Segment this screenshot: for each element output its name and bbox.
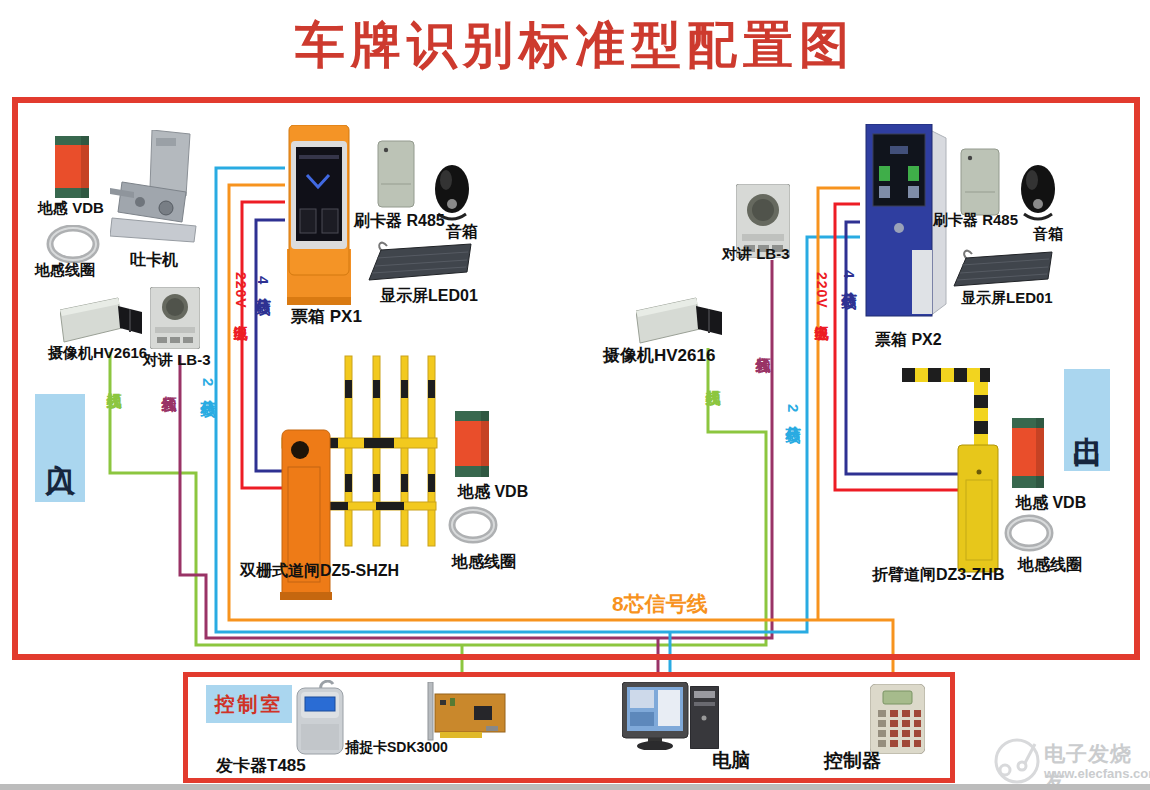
camera-image [60, 296, 144, 344]
bottom-strip [0, 784, 1150, 790]
intercom-image [150, 287, 200, 349]
exit-zone-badge: 出口 [1064, 369, 1110, 471]
power-wire-label: 220V 电源线 [232, 272, 250, 317]
ticket-box-2-label: 票箱 PX2 [875, 330, 942, 351]
camera-label: 摄像机HV2616 [48, 344, 147, 363]
control-room-badge: 控制室 [206, 685, 292, 723]
power-wire-label: 220V 电源线 [813, 272, 831, 317]
vdb-label: 地感 VDB [458, 482, 528, 503]
card-issuer-image [293, 680, 347, 758]
page-title: 车牌识别标准型配置图 [0, 12, 1150, 79]
camera-image [636, 295, 724, 345]
entrance-zone-badge: 入口 [35, 394, 85, 502]
exit-barrier-image [890, 360, 1010, 575]
controller-label: 控制器 [824, 748, 881, 774]
signal4-wire-label: 4芯信号线 [253, 276, 272, 289]
entrance-barrier-label: 双栅式道闸DZ5-SHZH [240, 561, 399, 582]
vdb-sensor-image [53, 136, 93, 198]
card-dispenser-label: 吐卡机 [130, 250, 178, 271]
vdb-label: 地感 VDB [1016, 493, 1086, 514]
signal8-wire-label: 8芯信号线 [612, 590, 708, 618]
camera-label: 摄像机HV2616 [603, 344, 715, 367]
computer-label: 电脑 [712, 748, 750, 774]
capture-card-image [426, 682, 508, 746]
vdb-label: 地感 VDB [38, 199, 104, 218]
audio-wire-label: 音频线 [753, 344, 772, 347]
capture-card-label: 捕捉卡SDK3000 [345, 739, 448, 757]
card-reader-image [377, 140, 415, 208]
led-display-label: 显示屏LED01 [380, 286, 478, 307]
computer-tower-image [690, 686, 719, 749]
video-wire-label: 视频线 [104, 380, 123, 383]
ticket-box-1-image [285, 125, 353, 305]
vdb-sensor-image [1010, 418, 1046, 488]
loop-coil-image [46, 225, 100, 263]
watermark-url: www.elecfans.com [1044, 766, 1150, 781]
ticket-box-1-label: 票箱 PX1 [291, 305, 362, 328]
card-reader-image [960, 148, 1000, 216]
watermark-brand: 电子发烧友 [1044, 740, 1150, 790]
signal2-wire-label: 2芯信号线 [783, 404, 802, 417]
vdb-sensor-image [453, 411, 491, 477]
speaker-label: 音箱 [1033, 225, 1063, 244]
intercom-label: 对讲 LB-3 [143, 351, 211, 370]
led-display-label: 显示屏LED01 [961, 289, 1053, 308]
signal2-wire-label: 2芯信号线 [198, 378, 217, 391]
audio-wire-label: 音频线 [159, 383, 178, 386]
loop-coil-image [448, 506, 498, 544]
elecfans-logo-icon [992, 736, 1042, 786]
signal4-wire-label: 4芯信号线 [839, 270, 858, 283]
video-wire-label: 视频线 [703, 377, 722, 380]
controller-image [870, 684, 925, 754]
led-display-image [952, 248, 1056, 294]
intercom-label: 对讲 LB-3 [722, 245, 790, 264]
card-reader-label: 刷卡器 R485 [933, 211, 1018, 230]
card-reader-label: 刷卡器 R485 [354, 211, 445, 232]
card-dispenser-image [110, 130, 200, 246]
card-issuer-label: 发卡器T485 [216, 754, 306, 777]
exit-barrier-label: 折臂道闸DZ3-ZHB [872, 565, 1004, 586]
led-display-image [367, 240, 475, 288]
speaker-label: 音箱 [446, 222, 478, 243]
loop-coil-image [1004, 514, 1054, 552]
loop-coil-label: 地感线圈 [35, 261, 95, 280]
speaker-image [1020, 164, 1056, 222]
loop-coil-label: 地感线圈 [452, 552, 516, 573]
computer-monitor-image [622, 682, 690, 750]
loop-coil-label: 地感线圈 [1018, 555, 1082, 576]
